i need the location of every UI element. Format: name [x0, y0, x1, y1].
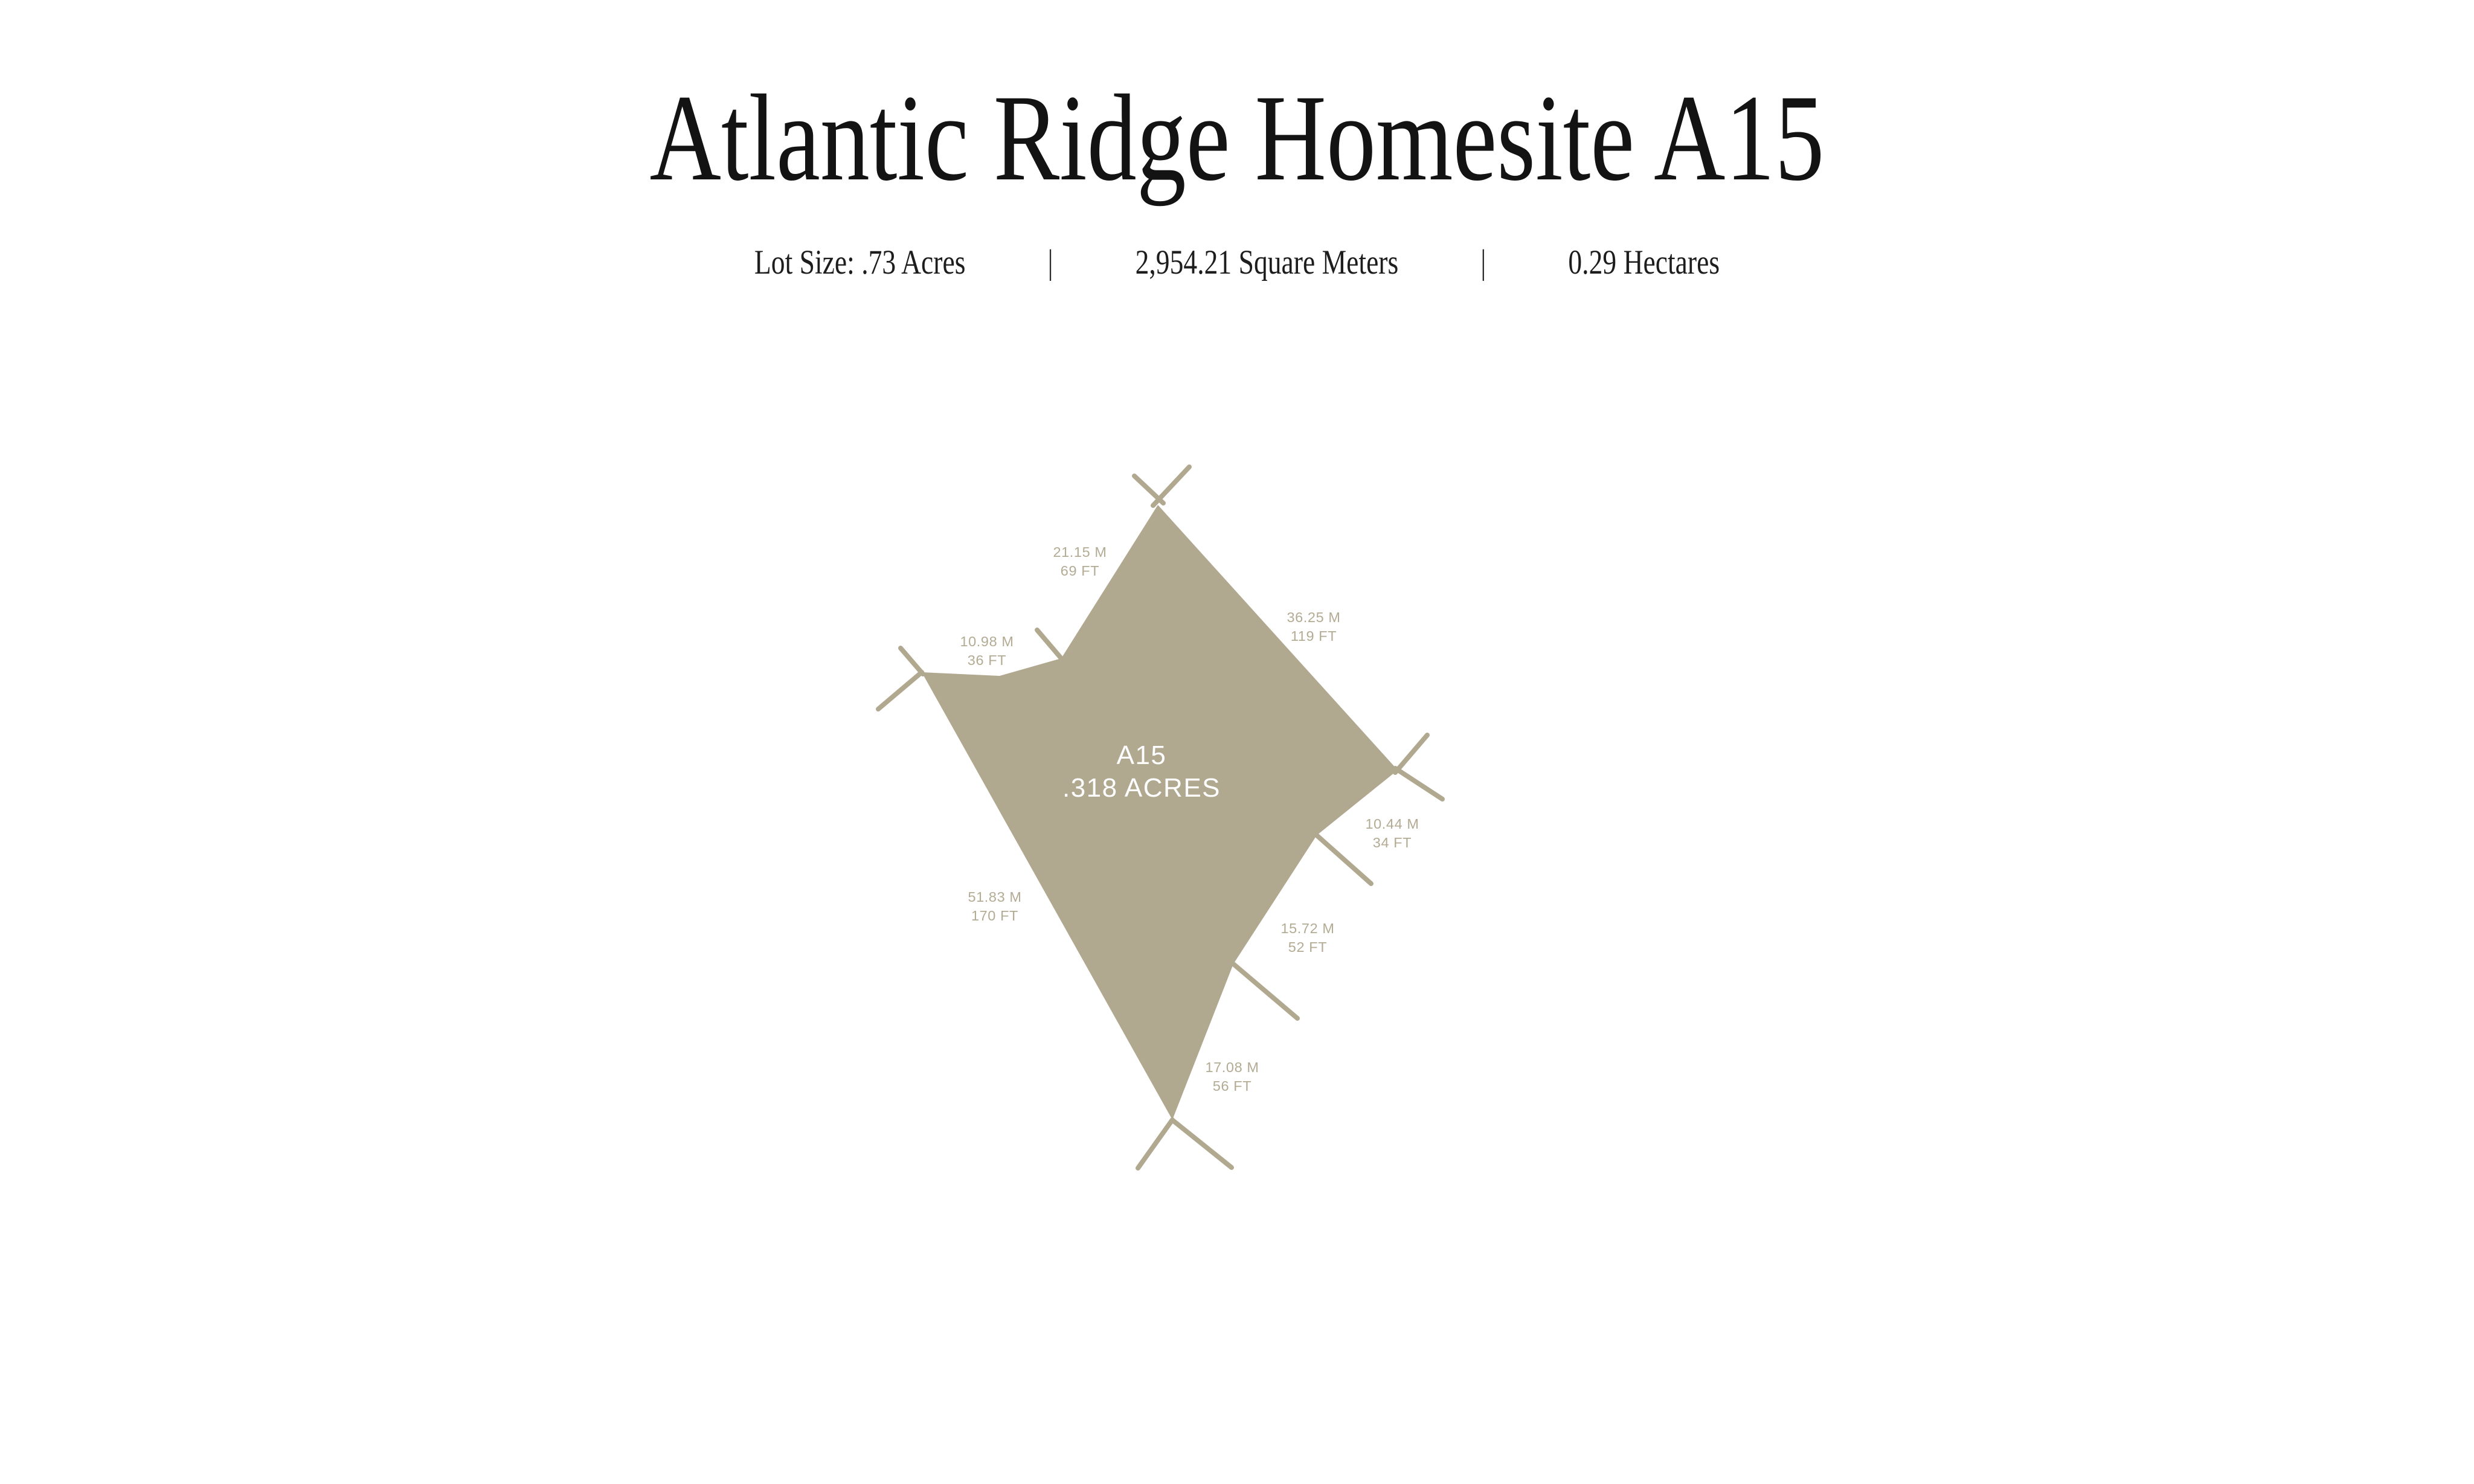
- lot-size-stats: Lot Size: .73 Acres | 2,954.21 Square Me…: [248, 243, 2227, 282]
- stat-hectares: 0.29 Hectares: [1568, 243, 1720, 282]
- corner-tick: [1037, 630, 1061, 658]
- corner-tick: [901, 648, 923, 674]
- edge-feet-label: 69 FT: [1061, 563, 1099, 579]
- corner-tick: [1174, 1121, 1232, 1168]
- edge-feet-label: 170 FT: [971, 908, 1018, 923]
- lot-area-label: .318 ACRES: [1062, 773, 1221, 803]
- edge-meters-label: 10.44 M: [1365, 816, 1419, 832]
- edge-feet-label: 119 FT: [1291, 628, 1337, 644]
- stat-acres: Lot Size: .73 Acres: [754, 243, 966, 282]
- edge-meters-label: 21.15 M: [1053, 544, 1107, 560]
- header: Atlantic Ridge Homesite A15 Lot Size: .7…: [0, 0, 2474, 282]
- corner-tick: [1138, 1120, 1172, 1168]
- corner-tick: [1395, 768, 1442, 799]
- corner-tick: [1233, 964, 1297, 1018]
- edge-feet-label: 34 FT: [1373, 835, 1412, 850]
- page-title: Atlantic Ridge Homesite A15: [248, 73, 2227, 203]
- corner-tick: [1395, 735, 1427, 773]
- stat-square-meters: 2,954.21 Square Meters: [1136, 243, 1399, 282]
- corner-tick: [1317, 835, 1371, 884]
- stat-divider: |: [1480, 243, 1486, 282]
- edge-feet-label: 52 FT: [1288, 939, 1327, 955]
- stat-divider: |: [1047, 243, 1053, 282]
- edge-meters-label: 51.83 M: [968, 889, 1021, 905]
- edge-meters-label: 15.72 M: [1280, 920, 1334, 936]
- corner-tick: [878, 672, 922, 709]
- edge-feet-label: 56 FT: [1213, 1078, 1251, 1094]
- lot-id-label: A15: [1117, 740, 1167, 770]
- edge-meters-label: 17.08 M: [1205, 1059, 1259, 1075]
- edge-feet-label: 36 FT: [968, 652, 1006, 668]
- edge-meters-label: 10.98 M: [960, 634, 1014, 649]
- lot-polygon: [922, 505, 1398, 1120]
- edge-meters-label: 36.25 M: [1287, 609, 1340, 625]
- corner-tick: [1153, 467, 1189, 506]
- page: 21.15 M 69 FT 36.25 M 119 FT 10.44 M 34 …: [0, 0, 2474, 1484]
